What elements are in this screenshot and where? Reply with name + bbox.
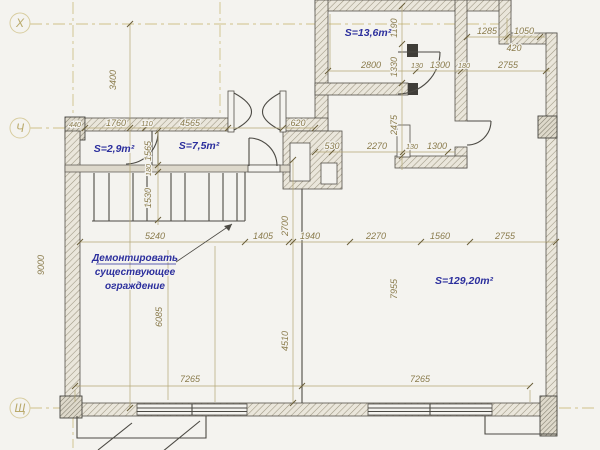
axis-label-ch: Ч (16, 121, 25, 135)
dim-1530: 1530 (143, 188, 153, 208)
wall-right-pier (538, 116, 557, 138)
dim-4565: 4565 (180, 118, 201, 128)
dim-1560: 1560 (430, 231, 450, 241)
wall-pier-dark2 (407, 44, 418, 57)
door-room3 (249, 138, 277, 166)
note-line-2: существующее (95, 267, 176, 278)
wall-right (546, 33, 557, 416)
wall-stub (395, 156, 467, 168)
room-label-7-5: S=7,5m² (179, 140, 220, 152)
dim-2700: 2700 (280, 216, 290, 237)
note-leader-arrowhead (224, 224, 232, 231)
dim-1300a: 1300 (430, 60, 450, 70)
dim-7265a: 7265 (180, 374, 201, 384)
dim-3400: 3400 (108, 70, 118, 90)
dim-5240: 5240 (145, 231, 165, 241)
dim-1330: 1330 (389, 57, 399, 77)
dim-2270b: 2270 (365, 231, 386, 241)
dim-130b: 130 (406, 142, 418, 151)
dim-2755b: 2755 (494, 231, 516, 241)
wall-topblock-left (315, 0, 328, 131)
floor-plan: Х Ч Щ (0, 0, 600, 450)
dim-130a: 130 (411, 61, 423, 70)
dim-4510: 4510 (280, 331, 290, 351)
dim-2755a: 2755 (497, 60, 519, 70)
dim-7955: 7955 (389, 278, 399, 299)
dim-1050: 1050 (514, 26, 534, 36)
room-label-129-20: S=129,20m² (435, 275, 494, 287)
dim-9000: 9000 (36, 255, 46, 275)
axis-label-x: Х (15, 16, 25, 30)
dim-180a: 180 (458, 61, 470, 70)
stair-treads (92, 172, 245, 221)
double-door-arcs (234, 93, 280, 130)
dim-2475: 2475 (389, 114, 399, 136)
dim-440: 440 (69, 120, 81, 129)
dim-1300b: 1300 (427, 141, 447, 151)
dim-6085: 6085 (154, 306, 164, 327)
dim-1285: 1285 (477, 26, 498, 36)
wall-corner-shch (60, 396, 82, 418)
wall-corner-br (540, 396, 557, 436)
room-label-2-9: S=2,9m² (94, 143, 135, 155)
dim-7265b: 7265 (410, 374, 431, 384)
shaft-niche-2 (321, 163, 337, 184)
dim-110: 110 (141, 119, 152, 128)
dim-1940: 1940 (300, 231, 320, 241)
axis-label-shch: Щ (14, 401, 25, 415)
dim-1565: 1565 (143, 140, 153, 161)
door-interior (467, 121, 491, 145)
room-label-13-6: S=13,6m² (345, 27, 392, 39)
note-line-3: ограждение (105, 281, 165, 292)
dim-180b: 180 (144, 164, 153, 176)
dim-2800: 2800 (360, 60, 381, 70)
double-door-leaf-left (228, 91, 234, 132)
wall-top-step (499, 0, 511, 44)
note-line-1: Демонтировать (91, 253, 178, 264)
entrance-steps-left (77, 416, 206, 450)
wall-left (65, 131, 80, 416)
note-leader-line (176, 224, 232, 262)
window-bottom-1 (137, 404, 247, 415)
window-bottom-2 (368, 404, 492, 415)
wall-pier-dark1 (408, 83, 418, 95)
dim-530: 530 (324, 141, 339, 151)
dim-420: 420 (506, 43, 521, 53)
walls (60, 0, 557, 436)
door-gap-d3 (248, 165, 280, 172)
stairs (92, 172, 245, 221)
wall-room1-bottom (315, 83, 408, 95)
wall-top-a (315, 0, 511, 11)
dim-620: 620 (290, 118, 305, 128)
dim-2270a: 2270 (366, 141, 387, 151)
floor-plan-canvas: Х Ч Щ (0, 0, 600, 450)
dim-1760: 1760 (106, 118, 126, 128)
dim-1405: 1405 (253, 231, 274, 241)
